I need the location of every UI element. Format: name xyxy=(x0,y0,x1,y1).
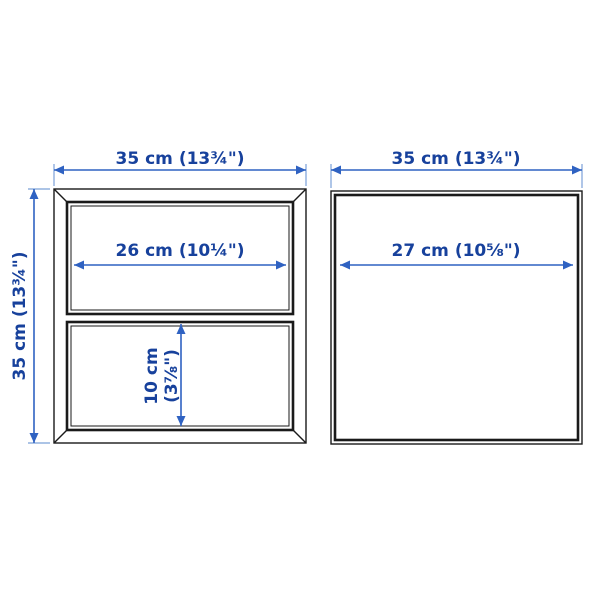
right-cabinet-outer-edge xyxy=(331,191,582,444)
right-cabinet-drawing: 35 cm (13¾") 27 cm (10⅝") xyxy=(331,149,582,444)
left-bottom-compartment-height-label-line2: (3⅞") xyxy=(162,349,182,403)
right-interior-width-dimension: 27 cm (10⅝") xyxy=(340,241,573,265)
left-overall-height-label: 35 cm (13¾") xyxy=(10,252,30,381)
left-overall-width-label: 35 cm (13¾") xyxy=(116,149,245,169)
dimension-drawing-canvas: 35 cm (13¾") 35 cm (13¾") 26 cm (10¼") 1… xyxy=(0,0,600,600)
right-overall-width-label: 35 cm (13¾") xyxy=(392,149,521,169)
left-cabinet-miter-top-left xyxy=(54,189,67,202)
right-overall-width-dimension: 35 cm (13¾") xyxy=(331,149,582,188)
left-cabinet-drawing: 35 cm (13¾") 35 cm (13¾") 26 cm (10¼") 1… xyxy=(10,149,306,443)
left-cabinet-miter-bottom-left xyxy=(54,430,67,443)
left-cabinet-outer-edge xyxy=(54,189,306,443)
left-bottom-compartment-height-dimension: 10 cm (3⅞") xyxy=(142,324,182,426)
left-cabinet-miter-bottom-right xyxy=(293,430,306,443)
left-top-compartment-width-dimension: 26 cm (10¼") xyxy=(74,241,286,265)
left-overall-height-dimension: 35 cm (13¾") xyxy=(10,189,50,443)
left-cabinet-miter-top-right xyxy=(293,189,306,202)
left-bottom-compartment-height-label-line1: 10 cm xyxy=(142,347,162,404)
product-dimension-diagram: 35 cm (13¾") 35 cm (13¾") 26 cm (10¼") 1… xyxy=(0,0,600,600)
right-interior-width-label: 27 cm (10⅝") xyxy=(392,241,521,261)
left-overall-width-dimension: 35 cm (13¾") xyxy=(54,149,306,186)
right-cabinet-opening-edge xyxy=(335,195,578,440)
left-top-compartment-width-label: 26 cm (10¼") xyxy=(116,241,245,261)
